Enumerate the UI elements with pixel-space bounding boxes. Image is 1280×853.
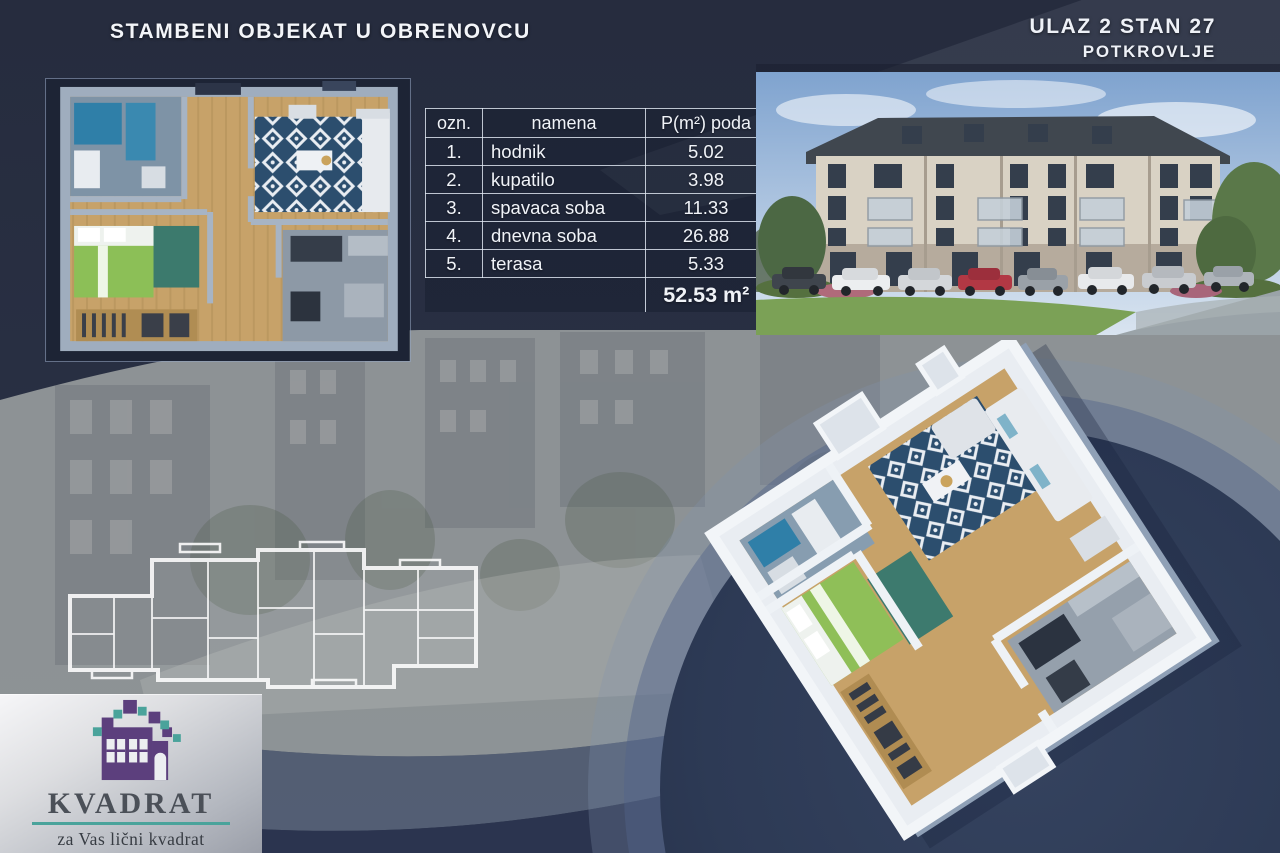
table-row: 3. spavaca soba 11.33	[426, 194, 767, 222]
row-name: spavaca soba	[483, 194, 646, 222]
header-ozn: ozn.	[426, 109, 483, 138]
building-floor-plan-drawing	[62, 538, 488, 690]
total-area-value: 52.53 m²	[646, 278, 767, 313]
company-logo-panel: KVADRAT za Vas lični kvadrat	[0, 694, 262, 853]
building	[806, 116, 1230, 292]
row-area: 3.98	[646, 166, 767, 194]
row-name: hodnik	[483, 138, 646, 166]
row-num: 3.	[426, 194, 483, 222]
floor-plan-top-view	[45, 78, 411, 362]
header-namena: namena	[483, 109, 646, 138]
table-row: 2. kupatilo 3.98	[426, 166, 767, 194]
table-row: 1. hodnik 5.02	[426, 138, 767, 166]
row-num: 5.	[426, 250, 483, 278]
row-area: 11.33	[646, 194, 767, 222]
living-room	[255, 105, 390, 212]
header-area: P(m²) poda	[646, 109, 767, 138]
row-area: 26.88	[646, 222, 767, 250]
unit-header: ULAZ 2 STAN 27 POTKROVLJE	[1029, 15, 1216, 62]
row-name: dnevna soba	[483, 222, 646, 250]
logo-divider	[32, 822, 230, 825]
row-num: 2.	[426, 166, 483, 194]
room-area-table: ozn. namena P(m²) poda 1. hodnik 5.02 2.…	[425, 108, 767, 312]
logo-brand-text: KVADRAT	[0, 789, 262, 819]
bathroom	[70, 97, 181, 196]
table-header-row: ozn. namena P(m²) poda	[426, 109, 767, 138]
row-name: terasa	[483, 250, 646, 278]
unit-entrance-apartment: ULAZ 2 STAN 27	[1029, 15, 1216, 39]
row-num: 1.	[426, 138, 483, 166]
row-area: 5.33	[646, 250, 767, 278]
unit-floor-label: POTKROVLJE	[1029, 42, 1216, 62]
row-name: kupatilo	[483, 166, 646, 194]
building-exterior-photo	[756, 72, 1280, 335]
brochure-page: STAMBENI OBJEKAT U OBRENOVCU ULAZ 2 STAN…	[0, 0, 1280, 853]
logo-tagline: za Vas lični kvadrat	[0, 829, 262, 850]
house-logo-icon	[71, 698, 191, 782]
table-row: 4. dnevna soba 26.88	[426, 222, 767, 250]
kitchen	[283, 230, 388, 341]
apartment-isometric-render	[690, 340, 1280, 853]
table-total-row: 52.53 m²	[426, 278, 767, 313]
hallway-closet	[76, 309, 197, 341]
row-num: 4.	[426, 222, 483, 250]
row-area: 5.02	[646, 138, 767, 166]
page-title: STAMBENI OBJEKAT U OBRENOVCU	[110, 20, 531, 44]
bedroom	[74, 226, 199, 297]
table-row: 5. terasa 5.33	[426, 250, 767, 278]
